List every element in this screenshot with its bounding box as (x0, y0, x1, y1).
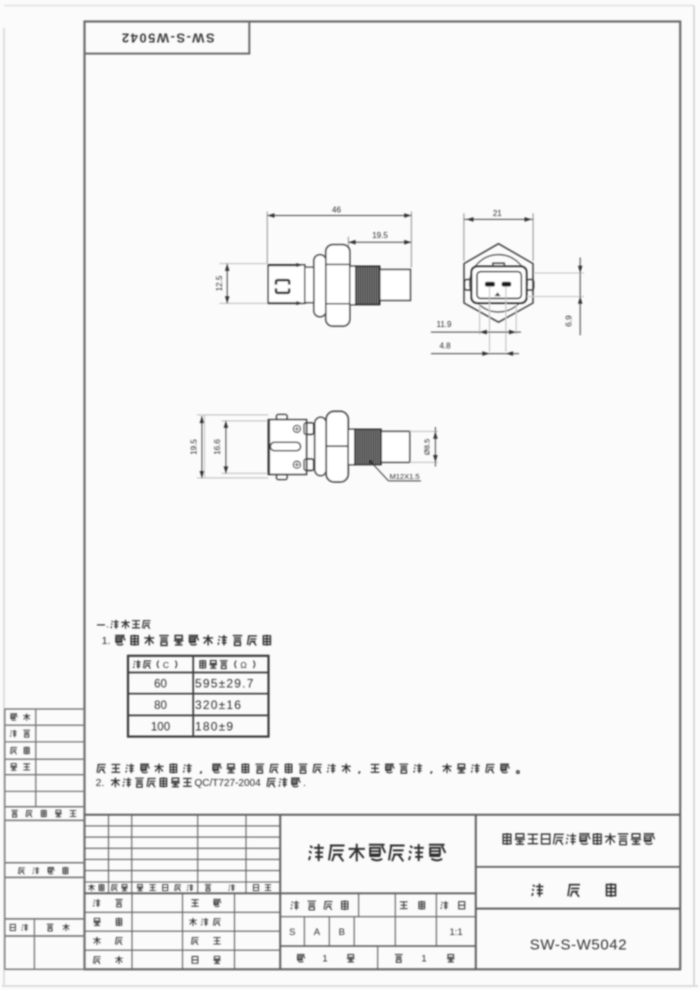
svg-text:1:1: 1:1 (449, 927, 462, 938)
svg-text:1: 1 (322, 954, 327, 965)
svg-text:Ø8.5: Ø8.5 (422, 439, 431, 455)
svg-text:320±16: 320±16 (195, 698, 242, 712)
svg-text:Ω: Ω (240, 660, 246, 670)
svg-text:1.: 1. (102, 635, 111, 647)
svg-text:1: 1 (421, 954, 426, 965)
svg-text:4.8: 4.8 (439, 342, 451, 351)
svg-text:.: . (106, 620, 109, 631)
svg-text:B: B (339, 927, 345, 938)
svg-text:180±9: 180±9 (195, 719, 234, 733)
svg-text:19.5: 19.5 (189, 439, 198, 455)
svg-text:.: . (303, 778, 306, 789)
svg-text:100: 100 (151, 721, 170, 733)
svg-text:11.9: 11.9 (437, 320, 453, 329)
svg-text:46: 46 (332, 206, 341, 215)
svg-text:6.9: 6.9 (565, 315, 574, 327)
svg-text:12.5: 12.5 (215, 275, 224, 291)
svg-text:2.: 2. (96, 777, 105, 789)
svg-text:595±29.7: 595±29.7 (195, 676, 255, 690)
svg-text:80: 80 (154, 700, 167, 712)
svg-text:19.5: 19.5 (372, 231, 388, 240)
svg-text:S: S (289, 927, 295, 938)
svg-text:SW-S-W5042: SW-S-W5042 (120, 31, 214, 46)
svg-text:16.6: 16.6 (213, 439, 222, 455)
svg-text:SW-S-W5042: SW-S-W5042 (530, 937, 627, 954)
svg-text:A: A (314, 927, 321, 938)
svg-text:QC/T727-2004: QC/T727-2004 (195, 778, 262, 789)
svg-text:60: 60 (154, 678, 167, 690)
svg-text:M12X1.5: M12X1.5 (390, 472, 420, 481)
svg-text:21: 21 (493, 209, 502, 218)
svg-text:C: C (163, 660, 169, 670)
